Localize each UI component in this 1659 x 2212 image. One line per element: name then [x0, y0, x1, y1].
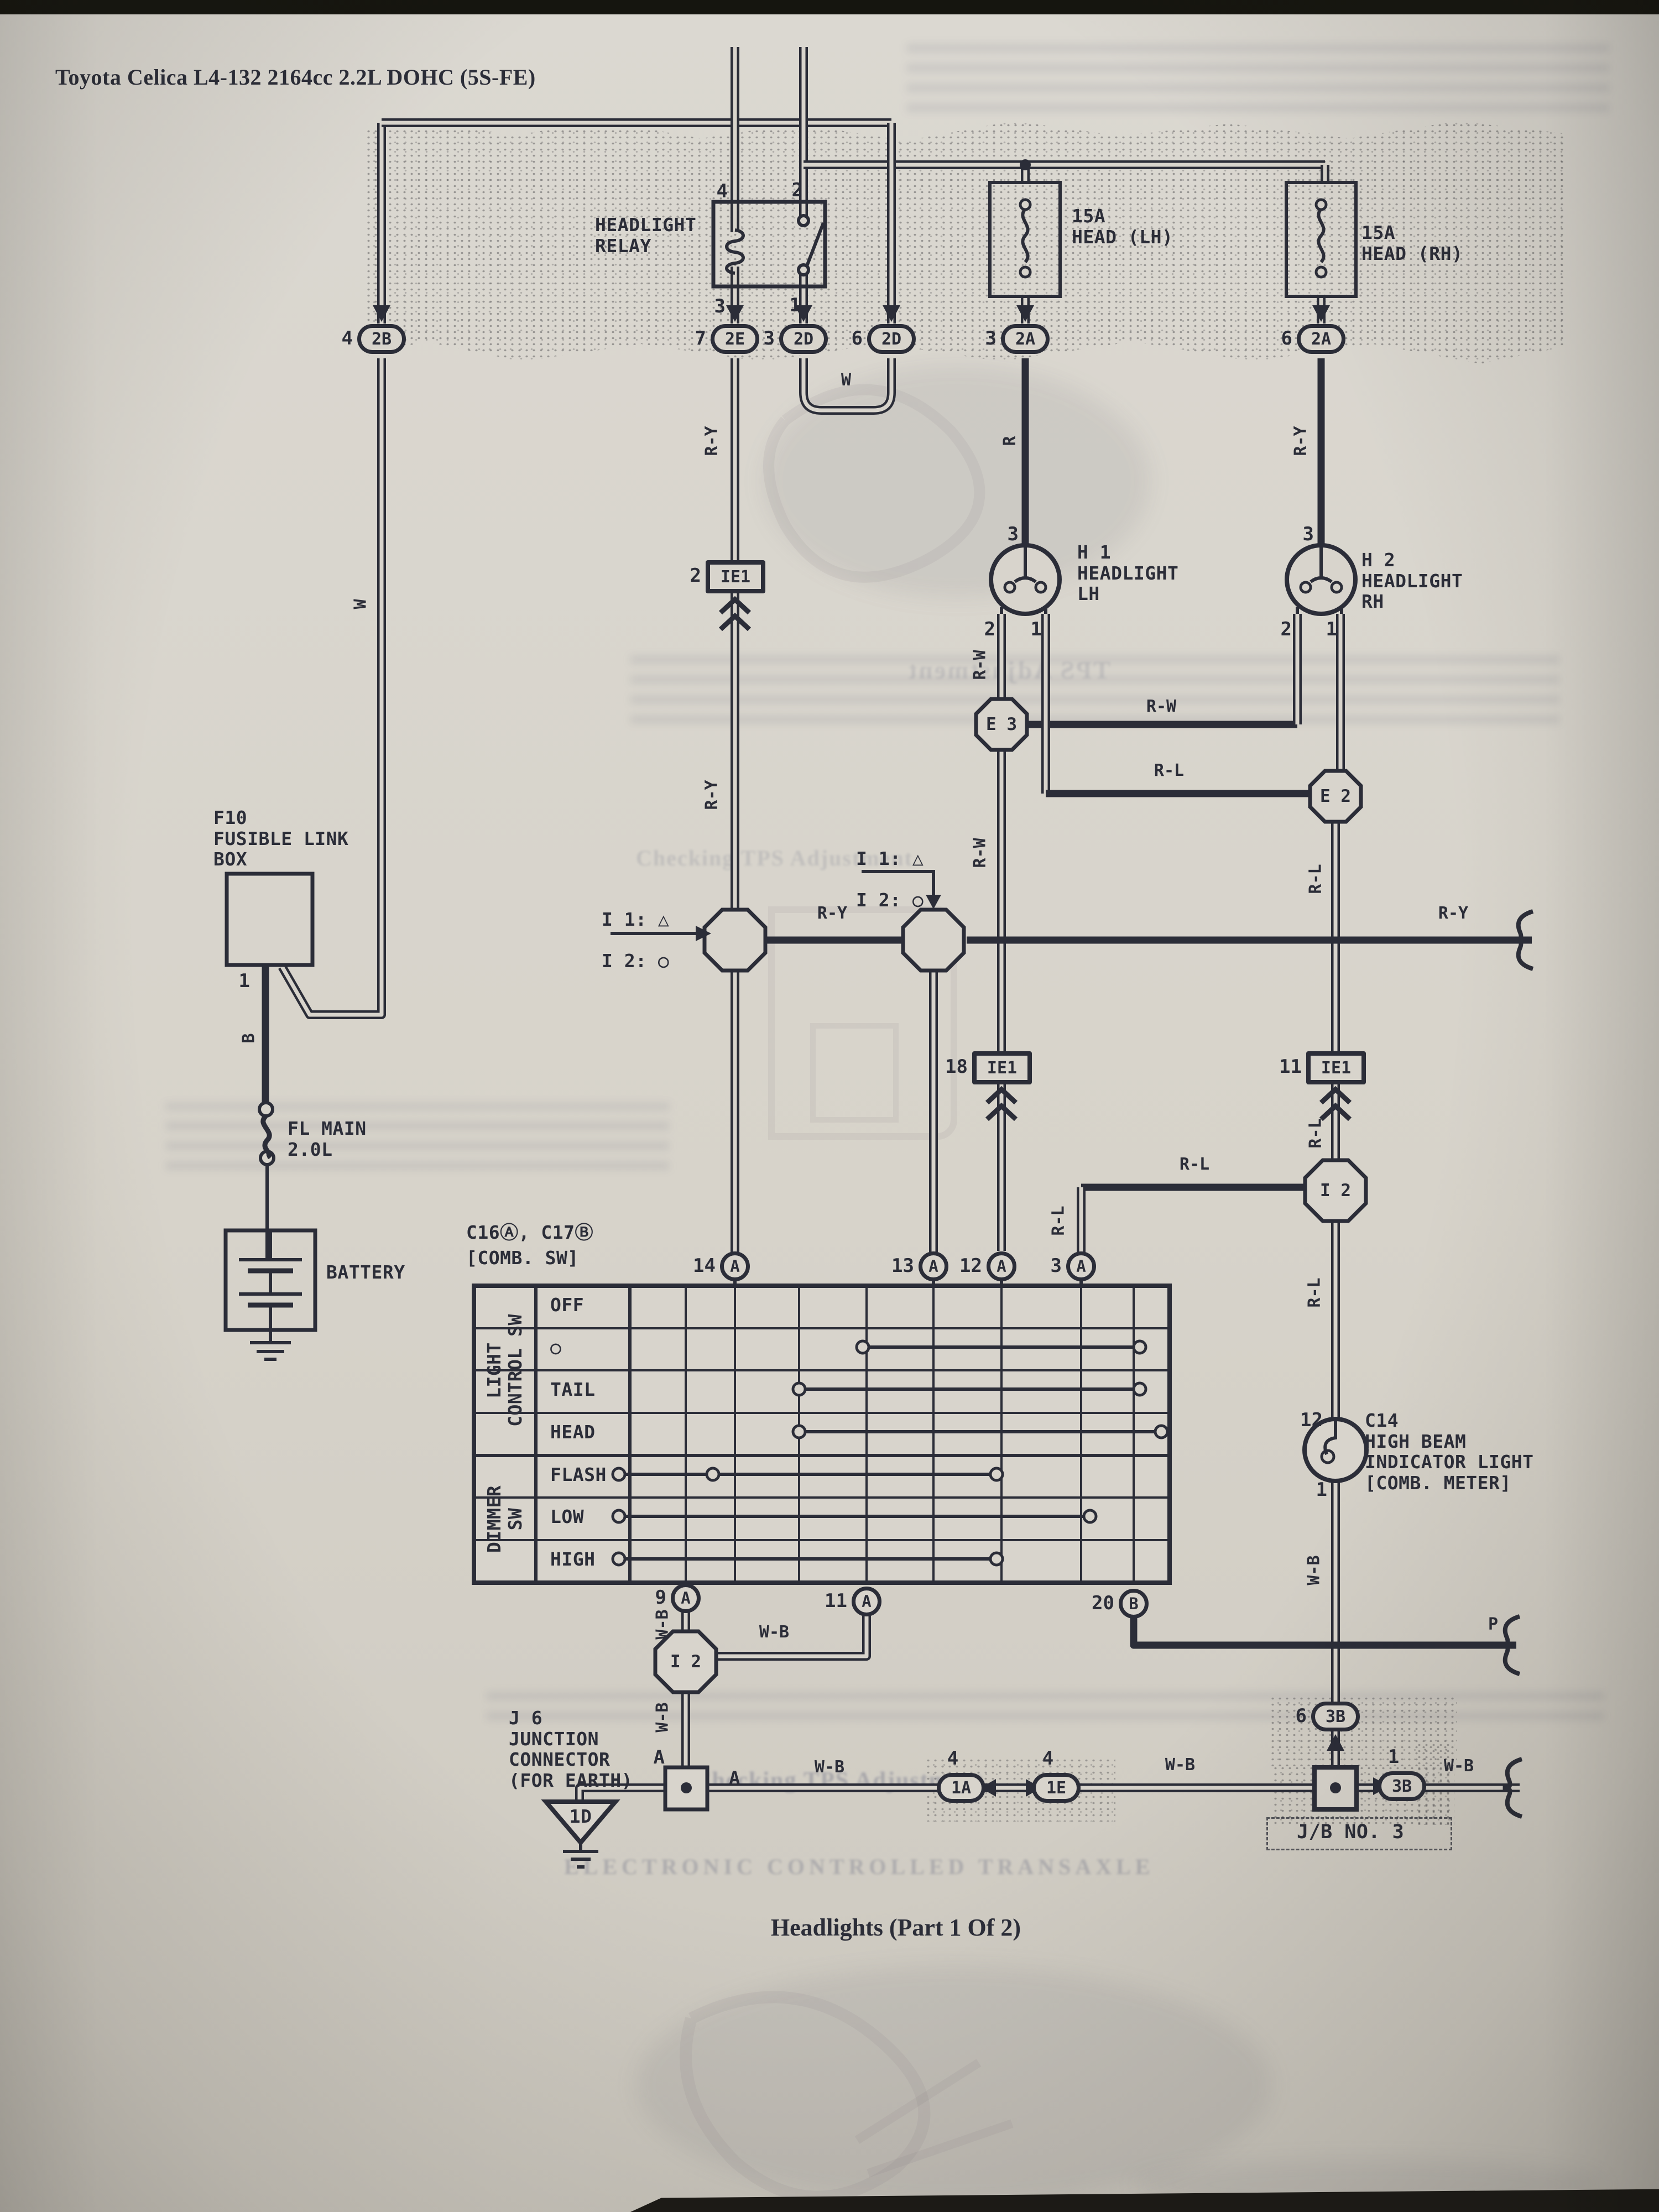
connector-12-A: A [987, 1251, 1016, 1281]
wire-color-label: W-B [653, 1684, 672, 1751]
pin-number: A [615, 1746, 665, 1768]
connector-pin-number: 7 [658, 327, 706, 349]
pin-number: 3 [1264, 523, 1314, 545]
connector-pin-number: 4 [928, 1747, 978, 1770]
comb-switch-subtitle: [COMB. SW] [466, 1248, 579, 1269]
connector-4-2B: 2B [357, 324, 406, 354]
high-beam-indicator-label: C14 HIGH BEAM INDICATOR LIGHT [COMB. MET… [1365, 1410, 1534, 1493]
connector-4-1A: 1A [937, 1773, 985, 1803]
wire-color-label: R-L [1161, 1155, 1228, 1174]
battery-ground [250, 1343, 291, 1359]
wire-arrow [373, 305, 390, 322]
connector-6-2D: 2D [867, 324, 916, 354]
jb-no3-label: J/B NO. 3 [1297, 1822, 1404, 1844]
earth-point-code: 1D [563, 1806, 598, 1827]
junction-dot [1330, 1782, 1341, 1793]
connector-2-IE1: IE1 [706, 560, 765, 593]
wire-color-label: P [1460, 1615, 1526, 1634]
connector-pin-number: 6 [1258, 1705, 1307, 1727]
connector-pin-number: 18 [919, 1056, 968, 1078]
legend-line: I 1: △ [856, 848, 924, 869]
pin-number: A [729, 1767, 779, 1790]
photo-table-edge-top [0, 0, 1659, 14]
bleed-sketch [769, 390, 979, 577]
pin-number: 12 [1273, 1409, 1323, 1431]
connector-9-A: A [671, 1583, 701, 1613]
wire-color-label: R-Y [1420, 904, 1486, 923]
connector-11-A: A [852, 1587, 881, 1616]
wire [1134, 1618, 1516, 1645]
connector-pin-number: 3 [1013, 1255, 1062, 1277]
wire-color-label: W-B [741, 1623, 807, 1642]
photographed-wiring-diagram-page: Toyota Celica L4-132 2164cc 2.2L DOHC (5… [0, 0, 1659, 2212]
fuse-element [1020, 200, 1030, 210]
pin-number: 2 [946, 618, 995, 640]
connector-3-A: A [1066, 1251, 1096, 1281]
contact-dot [1134, 1383, 1146, 1395]
wire-color-label: R-L [1306, 1100, 1326, 1167]
headlight-lh-label: H 1 HEADLIGHT LH [1077, 542, 1178, 604]
legend-line: I 2: ○ [856, 889, 924, 911]
pin-number: 1 [1277, 1479, 1327, 1501]
connector-1-3B: 3B [1378, 1771, 1426, 1801]
fuse-head-lh-label: 15A HEAD (LH) [1072, 206, 1173, 247]
table-row-LOW: LOW [550, 1506, 639, 1527]
fuse-element [1022, 209, 1027, 262]
junction-label: E 2 [1310, 771, 1361, 822]
wire-color-label: W-B [1147, 1755, 1213, 1775]
wire-arrow [726, 305, 744, 322]
connector-pin-number: 3 [726, 327, 775, 349]
connector-pin-number: 20 [1066, 1592, 1114, 1614]
contact-dot [857, 1341, 869, 1353]
headlight-relay-label: HEADLIGHT RELAY [595, 215, 696, 256]
connector-pin-number: 11 [799, 1590, 847, 1612]
connector-pin-number: 3 [948, 327, 997, 349]
wire-color-label: R-L [1136, 761, 1202, 780]
battery-plates [239, 1230, 302, 1343]
connector-pin-number: 2 [653, 565, 701, 587]
legend-line: I 1: △ [602, 909, 669, 930]
junction-plain [903, 910, 964, 971]
bleed-sketch [857, 2063, 1012, 2173]
fuse-head-rh-label: 15A HEAD (RH) [1361, 222, 1463, 264]
wire-color-label: W-B [1426, 1756, 1492, 1776]
connector-pin-number: 12 [933, 1255, 982, 1277]
contact-dot [990, 1553, 1003, 1565]
pin-number: 2 [1242, 618, 1292, 640]
junction-legend-right: I 1: △ I 2: ○ [856, 827, 924, 910]
table-row-FLASH: FLASH [550, 1464, 639, 1485]
contact-dot [1134, 1341, 1146, 1353]
earth-ground [563, 1843, 598, 1867]
wire-color-label: W-B [653, 1592, 672, 1658]
wire-color-label: R-Y [1291, 408, 1311, 474]
light-control-sw-label: LIGHT CONTROL SW [463, 1307, 546, 1434]
wire [282, 358, 382, 1015]
diagram-caption: Headlights (Part 1 Of 2) [724, 1913, 1067, 1942]
wire-color-label: R-L [1049, 1188, 1068, 1254]
junction-label: E 3 [976, 699, 1027, 750]
connector-3-2A: 2A [1001, 324, 1050, 354]
connector-pin-number: 6 [814, 327, 863, 349]
wire-color-label: R [1000, 408, 1020, 474]
fl-main-label: FL MAIN 2.0L [288, 1118, 367, 1160]
table-row-TAIL: TAIL [550, 1379, 639, 1400]
connector-pin-number: 13 [865, 1255, 914, 1277]
pin-number: 4 [678, 180, 728, 202]
contact-dot [707, 1468, 719, 1480]
wire-color-label: W [813, 371, 879, 390]
fusible-link-box [227, 874, 312, 965]
pin-number: 2 [753, 179, 803, 201]
connector-6-2A: 2A [1297, 324, 1345, 354]
wire-color-label: R-Y [702, 408, 722, 474]
connector-pin-number: 4 [1023, 1747, 1073, 1770]
wire-color-label: R-L [1306, 846, 1326, 912]
table-row-HIGH: HIGH [550, 1549, 639, 1570]
fl-main-symbol [259, 1103, 273, 1116]
wire-arrow [883, 305, 900, 322]
connector-11-IE1: IE1 [1306, 1051, 1366, 1084]
junction-label: I 2 [1305, 1160, 1366, 1221]
fuse-element [1316, 200, 1326, 210]
table-row-HEAD: HEAD [550, 1422, 639, 1443]
fusible-link-box-label: F10 FUSIBLE LINK BOX [213, 807, 348, 870]
relay-blade [807, 223, 823, 266]
legend-line: I 2: ○ [602, 950, 669, 972]
wire-color-label: R-Y [799, 904, 865, 923]
pin-number: 1 [751, 294, 801, 316]
connector-14-A: A [720, 1251, 750, 1281]
wire-color-label: W [351, 571, 371, 638]
junction-dot [681, 1782, 692, 1793]
junction-plain [705, 910, 765, 971]
fuse-element [1316, 267, 1326, 277]
contact-dot [1084, 1510, 1096, 1522]
pin-number: 3 [676, 295, 726, 317]
connector-20-B: B [1119, 1589, 1149, 1619]
fuse-element [1318, 209, 1323, 262]
wire-color-label: R-Y [702, 762, 722, 828]
connector-18-IE1: IE1 [972, 1051, 1032, 1084]
wire-color-label: R-W [1128, 697, 1194, 716]
wire-color-label: W-B [796, 1757, 863, 1777]
table-row-OFF: OFF [550, 1295, 639, 1316]
wire-arrow [1327, 1734, 1344, 1751]
contact-dot [990, 1468, 1003, 1480]
relay-contact [799, 265, 808, 275]
wire-arrow [1016, 305, 1034, 322]
bleed-sketch [813, 1026, 896, 1120]
table-row-○: ○ [550, 1337, 639, 1358]
wire-color-label: B [239, 1005, 259, 1072]
contact-dot [1155, 1426, 1167, 1438]
junction-legend-left: I 1: △ I 2: ○ [602, 888, 669, 971]
wire-color-label: W-B [1305, 1537, 1324, 1604]
junction-dot [1020, 159, 1031, 170]
pin-number: 1 [1287, 618, 1337, 640]
junction-connector-label: J 6 JUNCTION CONNECTOR (FOR EARTH) [509, 1708, 633, 1791]
connector-6-3B: 3B [1311, 1702, 1360, 1731]
wire-color-label: R-L [1305, 1260, 1324, 1326]
connector-pin-number: 11 [1253, 1056, 1302, 1078]
battery-label: BATTERY [326, 1262, 405, 1283]
page-title: Toyota Celica L4-132 2164cc 2.2L DOHC (5… [55, 64, 536, 90]
pin-number: 3 [969, 523, 1019, 545]
wire-color-label: R-W [971, 820, 990, 886]
wire [282, 358, 382, 1015]
dimmer-sw-label: DIMMER SW [463, 1455, 546, 1583]
wire-color-label: R-W [971, 632, 990, 698]
connector-pin-number: 6 [1244, 327, 1292, 349]
pin-number: 1 [200, 970, 250, 992]
comb-switch-title: C16Ⓐ, C17Ⓑ [466, 1222, 593, 1243]
connector-pin-number: 1 [1369, 1746, 1418, 1768]
headlight-rh-label: H 2 HEADLIGHT RH [1361, 550, 1463, 612]
connector-pin-number: 14 [667, 1255, 716, 1277]
wire-arrow [1312, 305, 1330, 322]
fuse-element [1020, 267, 1030, 277]
pin-number: 1 [992, 618, 1042, 640]
contact-dot [793, 1426, 805, 1438]
relay-contact [799, 216, 808, 226]
connector-pin-number: 4 [304, 327, 353, 349]
connector-4-1E: 1E [1032, 1773, 1081, 1803]
contact-dot [793, 1383, 805, 1395]
